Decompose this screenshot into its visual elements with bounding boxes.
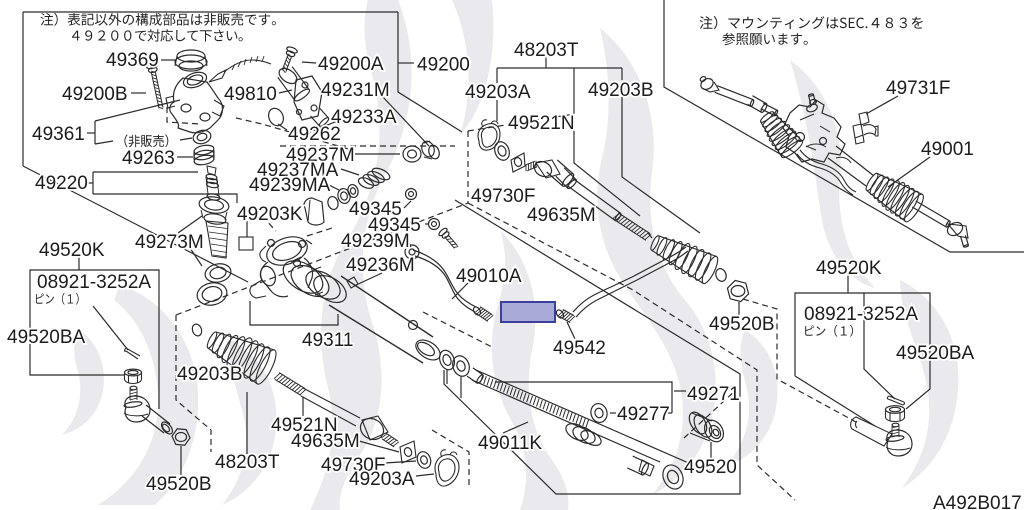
svg-text:49273M: 49273M bbox=[135, 232, 204, 253]
svg-text:49263: 49263 bbox=[122, 148, 175, 169]
svg-text:49635M: 49635M bbox=[527, 205, 596, 226]
svg-text:A492B017: A492B017 bbox=[933, 493, 1022, 510]
svg-text:49520BA: 49520BA bbox=[896, 343, 975, 364]
svg-text:49521N: 49521N bbox=[508, 113, 575, 134]
svg-text:08921-3252A: 08921-3252A bbox=[37, 272, 151, 293]
svg-text:49203A: 49203A bbox=[349, 469, 415, 490]
svg-text:49239MA: 49239MA bbox=[249, 175, 331, 196]
svg-text:49271: 49271 bbox=[687, 384, 740, 405]
svg-text:49239M: 49239M bbox=[341, 231, 410, 252]
svg-text:49203B: 49203B bbox=[588, 80, 654, 101]
svg-text:49011K: 49011K bbox=[478, 433, 542, 454]
svg-text:49520K: 49520K bbox=[816, 258, 882, 279]
svg-text:49203A: 49203A bbox=[465, 82, 531, 103]
svg-text:49220: 49220 bbox=[35, 173, 88, 194]
svg-text:49203K: 49203K bbox=[237, 204, 303, 225]
svg-text:49542: 49542 bbox=[553, 338, 606, 359]
svg-text:49203B: 49203B bbox=[177, 364, 243, 385]
svg-text:49277: 49277 bbox=[617, 404, 670, 425]
svg-text:49520: 49520 bbox=[684, 457, 737, 478]
svg-text:48203T: 48203T bbox=[514, 40, 579, 61]
svg-text:49200B: 49200B bbox=[62, 84, 128, 105]
svg-text:49231M: 49231M bbox=[321, 80, 390, 101]
svg-text:49001: 49001 bbox=[921, 139, 974, 160]
svg-text:08921-3252A: 08921-3252A bbox=[804, 304, 918, 325]
svg-text:49311: 49311 bbox=[302, 330, 353, 351]
svg-text:49520B: 49520B bbox=[146, 474, 212, 495]
svg-text:49236M: 49236M bbox=[346, 255, 415, 276]
svg-text:49635M: 49635M bbox=[291, 431, 360, 452]
svg-text:49730F: 49730F bbox=[471, 186, 535, 207]
svg-text:49520K: 49520K bbox=[39, 240, 105, 261]
svg-text:49262: 49262 bbox=[288, 124, 341, 145]
svg-text:49520BA: 49520BA bbox=[7, 327, 86, 348]
svg-text:49810: 49810 bbox=[224, 84, 277, 105]
svg-text:49369: 49369 bbox=[106, 50, 159, 71]
svg-text:49520B: 49520B bbox=[709, 314, 775, 335]
svg-text:49200: 49200 bbox=[417, 55, 470, 76]
svg-text:49233A: 49233A bbox=[331, 107, 397, 128]
svg-text:48203T: 48203T bbox=[215, 452, 280, 473]
svg-text:49010A: 49010A bbox=[456, 266, 522, 287]
svg-text:49361: 49361 bbox=[32, 124, 85, 145]
svg-text:49200A: 49200A bbox=[318, 54, 384, 75]
svg-text:49731F: 49731F bbox=[886, 78, 950, 99]
